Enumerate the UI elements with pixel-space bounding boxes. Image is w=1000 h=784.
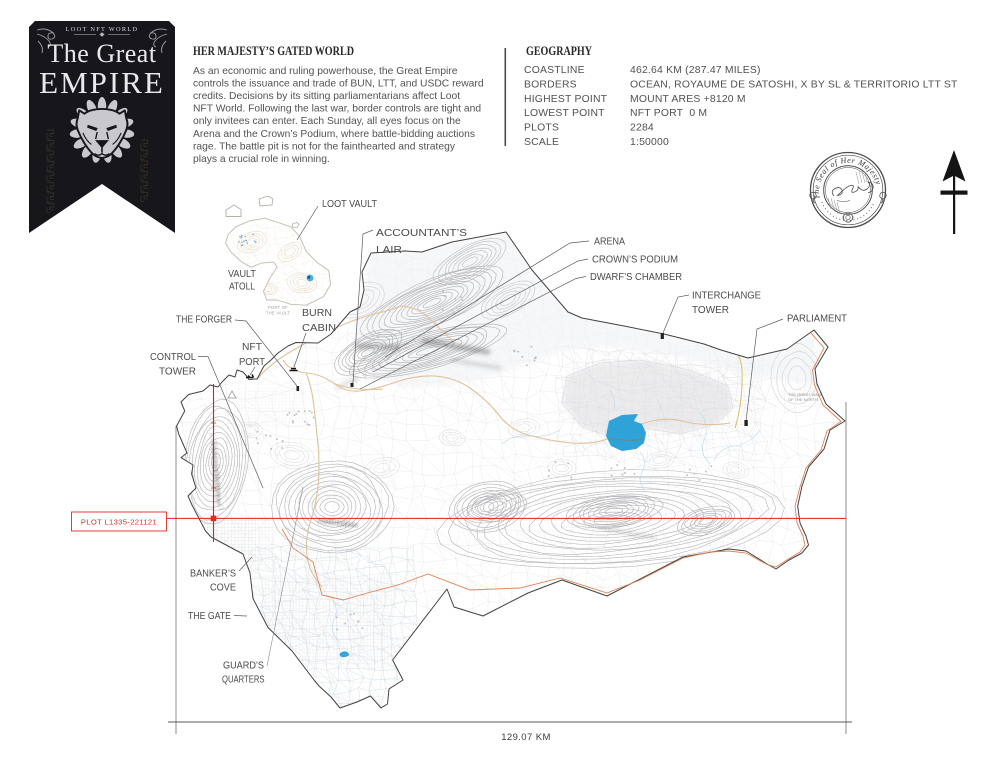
svg-text:ARENA: ARENA xyxy=(594,237,625,248)
svg-text:LOOT VAULT: LOOT VAULT xyxy=(322,199,377,210)
svg-text:1:50000: 1:50000 xyxy=(630,137,669,148)
svg-text:TOWER: TOWER xyxy=(159,367,196,378)
svg-text:BORDERS: BORDERS xyxy=(524,80,577,91)
svg-text:HER MAJESTY’S GATED WORLD: HER MAJESTY’S GATED WORLD xyxy=(193,44,354,58)
svg-text:THE VAULT: THE VAULT xyxy=(266,311,290,316)
svg-text:INTERCHANGE: INTERCHANGE xyxy=(692,291,761,302)
svg-text:QUARTERS: QUARTERS xyxy=(222,675,265,686)
svg-text:COASTLINE: COASTLINE xyxy=(524,65,585,76)
svg-text:HIGHEST POINT: HIGHEST POINT xyxy=(524,94,608,105)
svg-text:MOUNT ARES +8120 M: MOUNT ARES +8120 M xyxy=(630,94,746,105)
svg-text:NFT: NFT xyxy=(242,342,262,353)
svg-text:controls the issuance and trad: controls the issuance and trade of BUN, … xyxy=(193,79,484,90)
svg-text:LAIR: LAIR xyxy=(376,245,402,256)
svg-text:462.64 KM (287.47 MILES): 462.64 KM (287.47 MILES) xyxy=(630,65,761,76)
svg-text:OF THE NORTH: OF THE NORTH xyxy=(788,397,818,402)
svg-text:LOOT NFT WORLD: LOOT NFT WORLD xyxy=(66,26,139,33)
svg-text:NFT World. Following the last: NFT World. Following the last war, borde… xyxy=(193,104,481,115)
svg-text:EMPIRE: EMPIRE xyxy=(39,65,165,100)
svg-text:rage. The battle pit is not fo: rage. The battle pit is not for the fain… xyxy=(193,141,456,152)
svg-text:TOWER: TOWER xyxy=(692,305,729,316)
svg-text:ATOLL: ATOLL xyxy=(229,282,255,293)
svg-text:GEOGRAPHY: GEOGRAPHY xyxy=(526,44,592,58)
svg-text:THE GATE: THE GATE xyxy=(188,611,231,622)
svg-text:DWARF’S CHAMBER: DWARF’S CHAMBER xyxy=(590,272,682,283)
svg-text:LOWEST POINT: LOWEST POINT xyxy=(524,108,605,119)
svg-text:plays a crucial role in winnin: plays a crucial role in winning. xyxy=(193,154,330,165)
svg-text:GUARD’S: GUARD’S xyxy=(223,661,264,672)
svg-text:only invitees can enter. Each: only invitees can enter. Each Sunday, al… xyxy=(193,116,461,127)
svg-text:The Great: The Great xyxy=(47,39,156,68)
svg-text:CONTROL: CONTROL xyxy=(150,352,196,363)
svg-text:THE FORGER: THE FORGER xyxy=(176,315,232,326)
svg-text:Arena and the Crown’s Podium,: Arena and the Crown’s Podium, where batt… xyxy=(193,129,475,140)
svg-text:PLOTS: PLOTS xyxy=(524,123,559,134)
svg-text:2284: 2284 xyxy=(630,123,654,134)
svg-text:SCALE: SCALE xyxy=(524,137,559,148)
svg-text:VAULT: VAULT xyxy=(228,269,256,280)
svg-text:CROWN’S PODIUM: CROWN’S PODIUM xyxy=(592,255,678,266)
svg-text:PARLIAMENT: PARLIAMENT xyxy=(787,314,847,325)
svg-text:NFT PORT 0 M: NFT PORT 0 M xyxy=(630,108,707,119)
svg-text:BURN: BURN xyxy=(302,308,332,319)
svg-text:PORT OF: PORT OF xyxy=(268,305,288,310)
svg-text:PORT: PORT xyxy=(239,357,265,368)
svg-text:CABIN: CABIN xyxy=(302,323,336,334)
svg-text:BANKER’S: BANKER’S xyxy=(190,569,236,580)
svg-text:PLOT L1335-221121: PLOT L1335-221121 xyxy=(81,518,157,527)
svg-text:COVE: COVE xyxy=(210,583,236,594)
svg-text:OCEAN, ROYAUME DE SATOSHI, X B: OCEAN, ROYAUME DE SATOSHI, X BY SL & TER… xyxy=(630,80,958,91)
svg-text:As an economic and ruling powe: As an economic and ruling powerhouse, th… xyxy=(193,66,458,77)
svg-text:credits. Decisions by its sitt: credits. Decisions by its sitting parlia… xyxy=(193,91,460,102)
svg-text:ACCOUNTANT’S: ACCOUNTANT’S xyxy=(376,228,467,239)
svg-text:129.07 KM: 129.07 KM xyxy=(501,732,551,743)
